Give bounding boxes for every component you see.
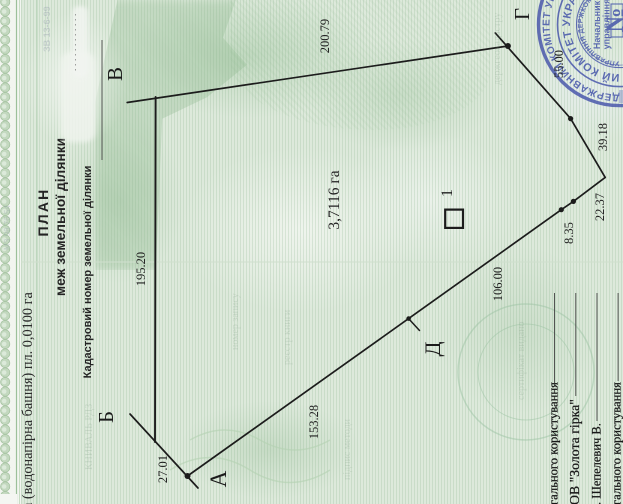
svg-text:195.20: 195.20: [134, 252, 148, 286]
svg-text:ОВ "Золота гірка": ОВ "Золота гірка": [567, 399, 582, 504]
svg-text:номер запису: номер запису: [230, 293, 241, 350]
svg-text:В: В: [103, 67, 127, 81]
svg-text:22.37: 22.37: [593, 193, 607, 221]
svg-text:гального користування: гального користування: [610, 382, 623, 504]
svg-text:сертифікат видано: сертифікат видано: [516, 321, 527, 400]
svg-text:а (водонапірна башня) пл. 0,01: а (водонапірна башня) пл. 0,0100 га: [20, 291, 36, 504]
svg-text:підпис методи: підпис методи: [342, 418, 353, 480]
svg-text:27.01: 27.01: [156, 455, 170, 483]
svg-text:№: №: [602, 7, 623, 32]
svg-text:39.18: 39.18: [596, 123, 610, 151]
svg-text:МЗ 98 76 54: МЗ 98 76 54: [3, 205, 12, 250]
svg-text:3,7116 га: 3,7116 га: [326, 170, 343, 229]
svg-text:Б: Б: [94, 411, 118, 423]
svg-text:Начальник: Начальник: [592, 0, 602, 49]
svg-text:. Шепелевич В.: . Шепелевич В.: [590, 423, 604, 504]
svg-text:153.28: 153.28: [307, 405, 321, 439]
svg-text:ЗВ 13-6-99: ЗВ 13-6-99: [42, 6, 52, 52]
svg-text:Г: Г: [510, 8, 534, 20]
svg-text:200.79: 200.79: [318, 19, 332, 53]
svg-text:106.00: 106.00: [491, 267, 505, 301]
svg-text:реєстр книги: реєстр книги: [282, 309, 293, 365]
svg-text:держгеокадастру: держгеокадастру: [492, 13, 503, 85]
svg-text:55.00: 55.00: [552, 50, 566, 78]
svg-text:Кадастровий номер земельної ді: Кадастровий номер земельної ділянки: [82, 166, 94, 379]
svg-text:меж земельної ділянки: меж земельної ділянки: [53, 138, 68, 296]
svg-text:А: А: [206, 470, 231, 487]
svg-text:1: 1: [439, 189, 456, 197]
svg-text:Д: Д: [420, 341, 445, 356]
svg-text:гального користування: гального користування: [547, 382, 561, 504]
svg-text:КНИВАЛЬ РДЗ: КНИВАЛЬ РДЗ: [84, 404, 95, 470]
svg-text:8.35: 8.35: [562, 222, 576, 244]
svg-text:ПЛАН: ПЛАН: [35, 188, 51, 237]
